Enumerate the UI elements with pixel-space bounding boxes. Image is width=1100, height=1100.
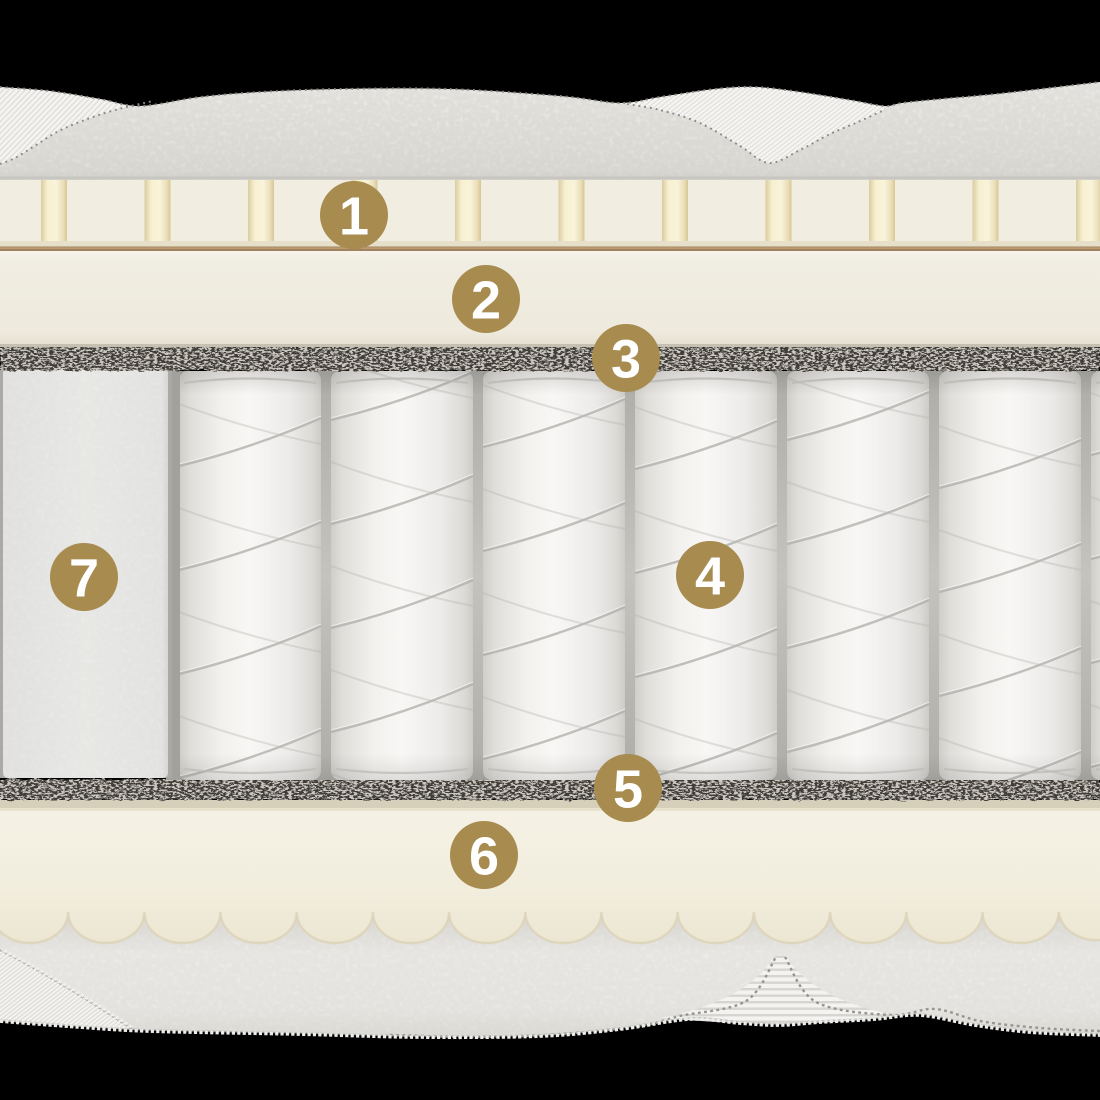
svg-text:7: 7 — [69, 549, 99, 609]
svg-text:1: 1 — [339, 187, 369, 247]
svg-text:5: 5 — [613, 760, 643, 820]
svg-text:4: 4 — [695, 547, 725, 607]
svg-text:6: 6 — [469, 827, 499, 887]
svg-text:3: 3 — [611, 330, 641, 390]
svg-text:2: 2 — [471, 271, 501, 331]
